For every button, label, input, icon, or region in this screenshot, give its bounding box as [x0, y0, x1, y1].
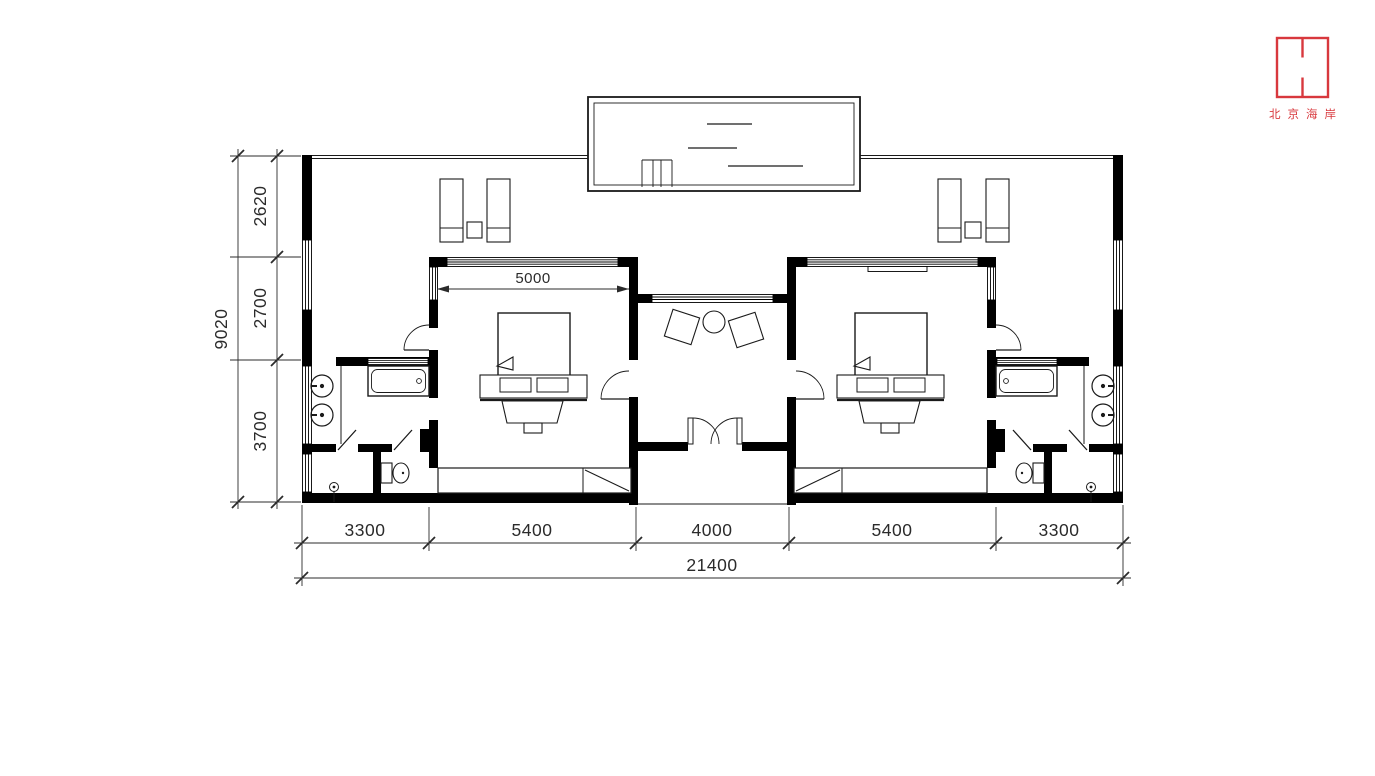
brand-logo: 北京海岸: [1269, 38, 1343, 121]
lounger: [938, 179, 961, 242]
window-over-tub: [368, 359, 428, 365]
door-leaf: [737, 418, 742, 444]
window: [807, 258, 978, 267]
sink: [1092, 375, 1114, 397]
pool: [588, 97, 860, 191]
bedroom-left: 5000: [404, 257, 638, 505]
headboard: [837, 375, 944, 398]
round-table: [703, 311, 725, 333]
side-table: [467, 222, 482, 238]
logo-mark-icon: [1277, 38, 1328, 97]
bench: [502, 401, 563, 423]
pillow: [500, 378, 531, 392]
dimension-labels-bottom: 3300 5400 4000 5400 3300 21400: [345, 520, 1080, 575]
dim-bottom-5: 3300: [1039, 520, 1080, 540]
pillow: [537, 378, 568, 392]
dim-left-3: 3700: [250, 411, 270, 452]
bed-right: [837, 313, 944, 433]
bathtub: [996, 366, 1057, 396]
bedroom-left-north-wall: [429, 257, 636, 267]
window: [988, 267, 996, 300]
window: [430, 267, 438, 300]
bedroom-left-door: [601, 371, 629, 399]
dim-left-2: 2700: [250, 288, 270, 329]
bathroom-left: [311, 357, 438, 502]
window: [652, 295, 773, 303]
pillow: [894, 378, 925, 392]
bedroom-right-east-wall: [987, 267, 996, 468]
floor-plan-canvas: 5000: [0, 0, 1375, 776]
bathroom-right: [987, 357, 1114, 502]
interior-dimension-5000: 5000: [437, 270, 629, 293]
lounger: [440, 179, 463, 242]
lounger: [487, 179, 510, 242]
window: [447, 258, 618, 267]
hall-north-wall: [638, 294, 787, 303]
dim-left-total: 9020: [211, 309, 231, 350]
sun-loungers-right: [938, 179, 1009, 242]
side-table: [965, 222, 981, 238]
bench-tab: [524, 423, 542, 433]
bathtub: [368, 366, 429, 396]
exterior-wall-right: [1113, 155, 1123, 503]
bench-tab: [881, 423, 899, 433]
pillow: [857, 378, 888, 392]
dim-bottom-2: 5400: [512, 520, 553, 540]
toilet: [381, 463, 409, 483]
hall-south-wall: [638, 442, 796, 451]
exterior-wall-left: [302, 155, 312, 503]
door-leaf: [688, 418, 693, 444]
bedroom-right-door: [796, 371, 824, 399]
closet-door-left: [404, 325, 429, 350]
bench: [859, 401, 920, 423]
sun-loungers-left: [440, 179, 510, 242]
dim-bedroom-width-label: 5000: [515, 270, 550, 287]
dim-bottom-total: 21400: [686, 555, 737, 575]
chair: [728, 312, 763, 347]
lounger: [986, 179, 1009, 242]
chair: [664, 309, 699, 344]
dim-bottom-1: 3300: [345, 520, 386, 540]
exterior-wall-bottom: [302, 493, 1123, 504]
dim-left-1: 2620: [250, 186, 270, 227]
closet-door-right: [996, 325, 1021, 350]
bedroom-right: [787, 257, 1021, 505]
dim-bottom-3: 4000: [692, 520, 733, 540]
sink: [1092, 404, 1114, 426]
floor-plan: 5000: [0, 0, 1375, 776]
logo-text: 北京海岸: [1269, 107, 1343, 121]
dimension-labels-left: 2620 2700 3700 9020: [211, 186, 270, 452]
bed-left: [480, 313, 587, 433]
bedroom-left-west-wall: [429, 267, 438, 468]
curtain-box: [868, 267, 927, 272]
headboard: [480, 375, 587, 398]
bedroom-right-north-wall: [789, 257, 996, 272]
window-over-tub: [997, 359, 1057, 365]
closet-left: [438, 468, 631, 493]
closet-right: [794, 468, 987, 493]
hall-seating: [664, 309, 763, 347]
dim-bottom-4: 5400: [872, 520, 913, 540]
toilet: [1016, 463, 1044, 483]
entry-hall: [638, 294, 796, 451]
entry-double-door: [688, 418, 742, 444]
sink: [311, 404, 333, 426]
sink: [311, 375, 333, 397]
